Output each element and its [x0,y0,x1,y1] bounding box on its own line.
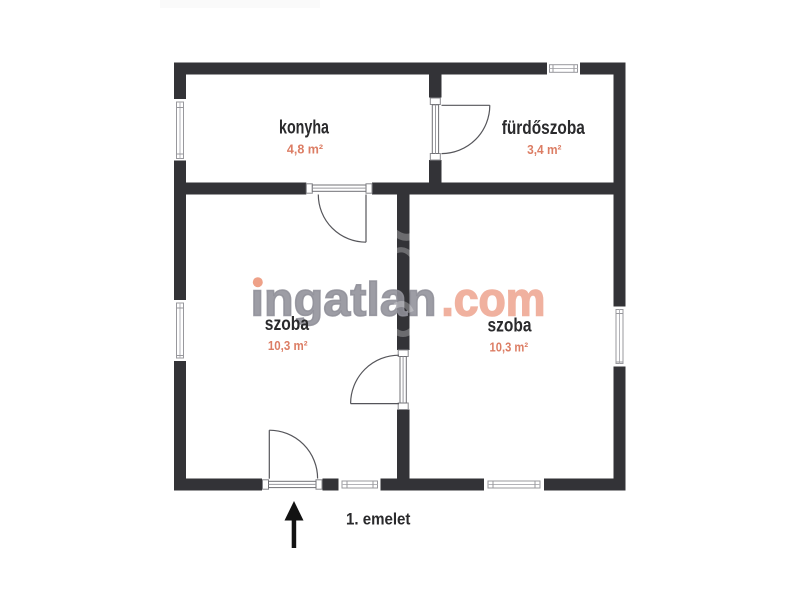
svg-text:szoba: szoba [265,314,310,335]
svg-text:szoba: szoba [488,316,532,337]
svg-text:fürdőszoba: fürdőszoba [502,118,586,139]
svg-text:10,3 m²: 10,3 m² [490,340,529,355]
svg-text:10,3 m²: 10,3 m² [268,338,308,353]
svg-text:konyha: konyha [279,117,329,138]
svg-text:3,4 m²: 3,4 m² [527,142,562,157]
svg-text:4,8 m²: 4,8 m² [287,142,324,157]
svg-text:1. emelet: 1. emelet [346,510,411,529]
